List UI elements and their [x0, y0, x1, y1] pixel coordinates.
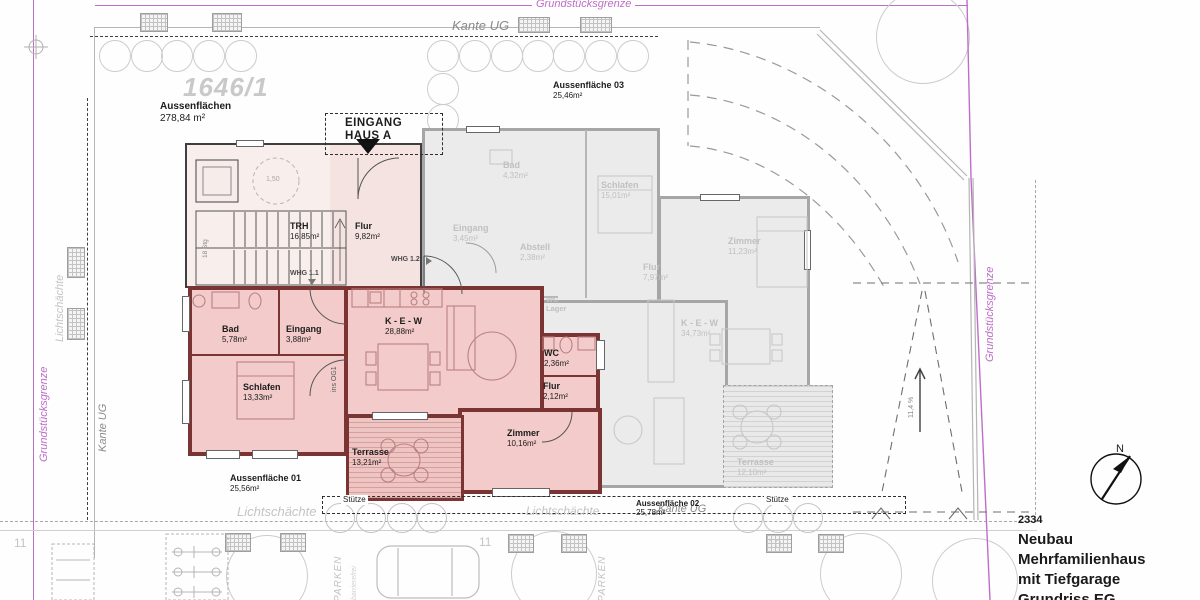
parcel-number: 1646/1: [183, 72, 269, 103]
window: [236, 140, 264, 147]
room-label-terrasse: Terrasse 13,21m²: [352, 447, 389, 467]
tree: [225, 40, 257, 72]
light-shaft: [518, 17, 550, 33]
whg12-tag: WHG 1.2: [391, 256, 420, 264]
stairwell-corridor-fill: [330, 145, 420, 286]
boundary-label-left: Grundstücksgrenze: [38, 367, 50, 462]
light-shaft: [818, 534, 844, 553]
outdoor-02-label: Aussenfläche 02 25,78m²: [636, 499, 699, 518]
lichtschaechte-label-left: Lichtschächte: [54, 275, 66, 342]
room-label-kew: K - E - W 28,88m²: [385, 316, 422, 336]
window: [804, 230, 811, 270]
title-line-4: Grundriss EG: [1018, 591, 1116, 600]
kante-ug-left-dashed-line: [87, 98, 88, 520]
light-shaft: [580, 17, 612, 33]
parking-edge-line: [0, 530, 1037, 531]
floor-plan-canvas: EINGANG HAUS A Grundstücksgrenze Grundst…: [0, 0, 1200, 600]
room-label-zimmer-whg12: Zimmer 11,23m²: [728, 236, 761, 256]
garage-ramp: [853, 283, 1032, 519]
parking-number-11-left: 11: [14, 536, 26, 550]
pink-partition-wall: [542, 375, 598, 377]
room-label-zimmer: Zimmer 10,16m²: [507, 428, 540, 448]
whg11-bedroom-wing: [188, 286, 348, 456]
barrierefrei-label: barrierefrei: [351, 566, 358, 600]
window: [182, 380, 190, 424]
room-label-stair-flur: Flur 9,82m²: [355, 221, 380, 241]
stairs-count-label: 18 Stg: [202, 239, 209, 258]
north-compass: [1091, 454, 1141, 504]
light-shaft: [67, 308, 85, 340]
light-shaft: [225, 533, 251, 552]
tree-large: [876, 0, 970, 84]
room-label-trh: TRH 16,85m²: [290, 221, 319, 241]
title-line-2: Mehrfamilienhaus: [1018, 551, 1146, 568]
turning-circle-label: 1,50: [266, 176, 280, 184]
room-label-wc: WC 2,36m²: [544, 348, 569, 368]
ramp-slope-label: 11,4 %: [908, 397, 915, 418]
whg12-door-marker-icon: [426, 257, 432, 265]
tree: [99, 40, 131, 72]
whg11-door-marker-icon: [308, 279, 316, 285]
window: [182, 296, 190, 332]
room-label-flur2: Flur 2,12m²: [543, 381, 568, 401]
room-label-schlafen-whg12: Schlafen 15,01m²: [601, 180, 639, 200]
light-shaft: [561, 534, 587, 553]
kante-ug-top-dashed-line: [90, 36, 658, 37]
whg11-room: [458, 408, 602, 494]
title-line-1: Neubau: [1018, 531, 1073, 548]
car: [377, 546, 479, 598]
tree: [617, 40, 649, 72]
parken-label-1: PARKEN: [333, 556, 344, 600]
outdoor-01-label: Aussenfläche 01 25,56m²: [230, 473, 301, 493]
outdoor-03-label: Aussenfläche 03 25,46m²: [553, 80, 624, 100]
survey-marker: [24, 35, 48, 59]
whg11-tag: WHG 1.1: [290, 270, 319, 278]
tree: [553, 40, 585, 72]
terrace-door: [372, 412, 428, 420]
tree: [427, 73, 459, 105]
tree: [193, 40, 225, 72]
outdoor-total-label: Aussenflächen 278,84 m²: [160, 101, 231, 125]
entrance-label-line1: EINGANG: [345, 117, 402, 131]
room-label-eingang-whg12: Eingang 3,45m²: [453, 223, 489, 243]
room-label-kew-whg12: K - E - W 34,73m²: [681, 318, 718, 338]
pink-partition-wall: [190, 354, 346, 356]
whg11-living-kitchen: [344, 286, 544, 418]
tree: [522, 40, 554, 72]
light-shaft: [212, 13, 242, 32]
title-line-3: mit Tiefgarage: [1018, 571, 1120, 588]
site-wall-left-line: [94, 27, 95, 558]
room-label-eingang: Eingang 3,88m²: [286, 324, 322, 344]
entrance-arrow-icon: [356, 139, 380, 154]
room-label-bad: Bad 5,78m²: [222, 324, 247, 344]
tree: [932, 538, 1018, 600]
boundary-label-top: Grundstücksgrenze: [532, 0, 635, 11]
lichtschaechte-label-1: Lichtschächte: [237, 504, 317, 520]
window: [596, 340, 605, 370]
tree: [491, 40, 523, 72]
tree: [427, 40, 459, 72]
lichtschaechte-label-2: Lichtschächte: [526, 504, 599, 518]
stuetze-label-2: Stütze: [764, 495, 791, 505]
tree: [459, 40, 491, 72]
ramp-right-dashed-line: [1035, 180, 1036, 520]
parking-number-10: 10: [768, 537, 781, 551]
parken-label-2: PARKEN: [597, 556, 608, 600]
property-boundary-left-line: [33, 0, 34, 600]
north-label: N: [1116, 443, 1124, 456]
boundary-label-right: Grundstücksgrenze: [984, 267, 996, 362]
room-label-wc-lager-whg12: WC Lager: [546, 296, 566, 314]
kante-ug-bottom-dashed-box: [322, 496, 906, 514]
gray-partition-wall: [585, 130, 587, 298]
light-shaft: [508, 534, 534, 553]
room-label-flur-whg12: Flur 7,97m²: [643, 262, 668, 282]
pink-partition-wall: [278, 288, 280, 356]
room-label-schlafen: Schlafen 13,33m²: [243, 382, 281, 402]
window: [700, 194, 740, 201]
tree: [161, 40, 193, 72]
light-shaft: [140, 13, 168, 32]
stuetze-label-1: Stütze: [341, 495, 368, 505]
parking-number-11: 11: [479, 535, 491, 549]
window: [466, 126, 500, 133]
site-wall-diagonal: [817, 30, 978, 520]
stairs-direction-label: ins OG1: [331, 366, 338, 392]
tree: [131, 40, 163, 72]
room-label-abstell-whg12: Abstell 2,38m²: [520, 242, 550, 262]
light-shaft: [280, 533, 306, 552]
room-label-bad-whg12: Bad 4,32m²: [503, 160, 528, 180]
project-number: 2334: [1018, 514, 1042, 526]
window: [206, 450, 240, 459]
kante-ug-label-left: Kante UG: [97, 404, 109, 452]
kante-ug-label-top: Kante UG: [452, 18, 509, 34]
room-label-terrasse-whg12: Terrasse 12,10m²: [737, 457, 774, 477]
window: [252, 450, 298, 459]
bike-racks: [52, 534, 228, 600]
light-shaft: [67, 247, 85, 278]
parking-edge-dashed-line: [0, 521, 1037, 522]
tree: [585, 40, 617, 72]
